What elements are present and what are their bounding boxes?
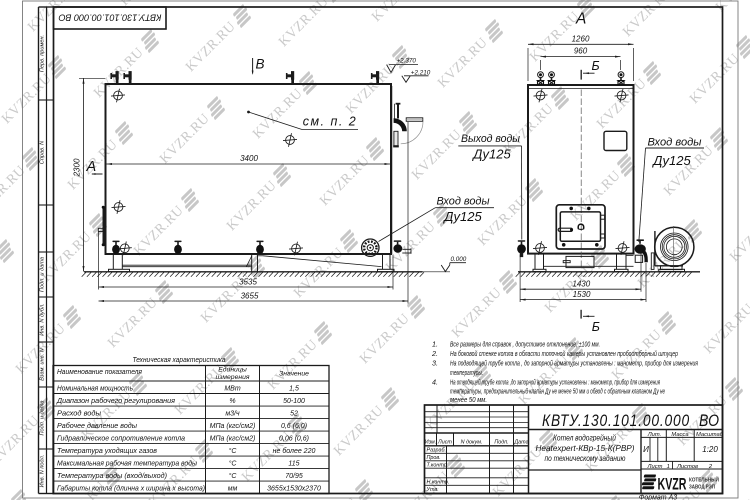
svg-text:м3/ч: м3/ч — [225, 410, 240, 417]
svg-text:115: 115 — [288, 460, 299, 467]
svg-text:3655х1530х2370: 3655х1530х2370 — [267, 485, 321, 492]
svg-text:3.: 3. — [432, 359, 438, 368]
svg-text:2300: 2300 — [73, 158, 82, 177]
svg-text:см. п. 2: см. п. 2 — [303, 115, 358, 129]
svg-text:3655: 3655 — [241, 292, 259, 301]
svg-text:А: А — [575, 11, 586, 28]
svg-text:температуры.: температуры. — [450, 368, 483, 377]
svg-text:Диапазон рабочего регулировани: Диапазон рабочего регулирования — [56, 397, 175, 405]
svg-text:3535: 3535 — [239, 278, 257, 287]
svg-text:Значение: Значение — [279, 371, 309, 378]
svg-text:Б: Б — [592, 59, 600, 73]
svg-text:Масса: Масса — [671, 432, 689, 438]
svg-text:Н.контр.: Н.контр. — [427, 480, 450, 486]
svg-text:Техническая характеристика: Техническая характеристика — [133, 355, 226, 364]
svg-text:Вход воды: Вход воды — [648, 137, 702, 149]
svg-text:70/95: 70/95 — [285, 473, 303, 480]
svg-text:менее 50 мм.: менее 50 мм. — [450, 395, 487, 404]
svg-text:На боковой стенке котла в обла: На боковой стенке котла в области топочн… — [450, 349, 678, 358]
svg-text:Формат А3: Формат А3 — [639, 495, 677, 500]
svg-text:°С: °С — [229, 447, 238, 455]
svg-text:МПа (кгс/см2): МПа (кгс/см2) — [210, 423, 256, 430]
svg-text:Максимальная рабочая температу: Максимальная рабочая температура воды — [57, 459, 198, 467]
svg-text:Подп.: Подп. — [494, 440, 508, 446]
svg-text:Расход воды: Расход воды — [57, 409, 102, 417]
svg-text:+2.370: +2.370 — [397, 58, 417, 65]
svg-text:мм: мм — [228, 485, 238, 492]
svg-text:Температура уходящих газов: Температура уходящих газов — [57, 447, 157, 455]
svg-text:Heatexpert-КВр-15-К(РВР): Heatexpert-КВр-15-К(РВР) — [536, 443, 635, 453]
svg-text:1260: 1260 — [572, 34, 590, 43]
svg-text:Дата: Дата — [513, 440, 528, 446]
svg-text:Разраб.: Разраб. — [427, 448, 447, 454]
svg-text:°С: °С — [229, 459, 238, 467]
svg-text:Все размеры для справок , допу: Все размеры для справок , допустимое отк… — [450, 340, 600, 349]
svg-text:по техническому заданию: по техническому заданию — [545, 454, 626, 463]
svg-text:А: А — [86, 159, 97, 175]
svg-text:На отводящей трубе котла ,до з: На отводящей трубе котла ,до запорной ар… — [450, 378, 660, 387]
svg-text:Ду125: Ду125 — [471, 147, 511, 162]
svg-text:Лист: Лист — [647, 464, 663, 470]
svg-text:Листов: Листов — [676, 464, 698, 470]
svg-text:Инв. N подл.: Инв. N подл. — [40, 455, 46, 488]
svg-text:На подводящей трубе котла ,: На подводящей трубе котла , до запорной … — [450, 359, 698, 368]
svg-text:Пров.: Пров. — [427, 455, 441, 461]
svg-text:Габариты котла (длинна х ширин: Габариты котла (длинна х ширина х высота… — [57, 484, 205, 492]
svg-text:КОТЕЛЬНЫЙ: КОТЕЛЬНЫЙ — [689, 475, 719, 483]
svg-text:50-100: 50-100 — [283, 398, 305, 405]
svg-text:Изм.: Изм. — [425, 440, 437, 446]
svg-text:В: В — [256, 57, 265, 72]
svg-text:Единицы: Единицы — [218, 366, 246, 374]
svg-text:Подп. и дата: Подп. и дата — [40, 257, 46, 292]
svg-text:Масштаб: Масштаб — [696, 432, 724, 438]
svg-text:Инв. N дубл.: Инв. N дубл. — [40, 303, 46, 335]
svg-text:Наименование показателя: Наименование показателя — [57, 369, 142, 376]
svg-text:Вход воды: Вход воды — [437, 196, 490, 208]
svg-text:Рабочее давление воды: Рабочее давление воды — [57, 422, 138, 430]
svg-text:измерения: измерения — [215, 374, 249, 381]
svg-text:+2.210: +2.210 — [411, 69, 431, 76]
svg-text:Справ. N: Справ. N — [40, 140, 46, 164]
svg-text:ЗАВОД РЭП: ЗАВОД РЭП — [689, 485, 715, 491]
svg-text:°С: °С — [229, 472, 238, 480]
svg-text:52: 52 — [290, 410, 298, 417]
svg-text:1:20: 1:20 — [702, 445, 718, 454]
svg-text:Взам. инв. N: Взам. инв. N — [40, 347, 46, 381]
svg-text:МПа (кгс/см2): МПа (кгс/см2) — [210, 435, 256, 442]
svg-text:960: 960 — [574, 47, 588, 56]
svg-text:Ду125: Ду125 — [442, 209, 482, 224]
svg-text:1,5: 1,5 — [289, 385, 299, 392]
svg-text:МВт: МВт — [224, 385, 241, 392]
svg-text:Котел водогрейный: Котел водогрейный — [553, 434, 616, 443]
svg-text:Подп. и дата: Подп. и дата — [40, 400, 46, 435]
svg-text:КВТУ.130.101.00.000 ВО: КВТУ.130.101.00.000 ВО — [58, 12, 162, 23]
svg-text:Гидравлическое сопротивление к: Гидравлическое сопротивление котла — [57, 434, 185, 442]
svg-text:1: 1 — [667, 464, 670, 470]
svg-text:Номинальная мощность: Номинальная мощность — [57, 385, 133, 392]
svg-text:Б: Б — [592, 320, 600, 334]
svg-text:Выход воды: Выход воды — [461, 133, 520, 145]
svg-text:КВТУ.130.101.00.000: КВТУ.130.101.00.000 — [542, 412, 690, 430]
svg-text:0,6 (6,0): 0,6 (6,0) — [281, 423, 307, 430]
svg-text:1.: 1. — [432, 340, 438, 349]
svg-text:%: % — [229, 398, 235, 405]
svg-text:Лист: Лист — [437, 440, 452, 446]
svg-text:0,06 (0,6): 0,06 (0,6) — [279, 435, 309, 442]
svg-text:Ду125: Ду125 — [651, 153, 691, 168]
svg-text:2.: 2. — [431, 349, 438, 358]
svg-text:И: И — [643, 445, 649, 454]
svg-text:Перв. примен.: Перв. примен. — [40, 35, 46, 72]
svg-text:1530: 1530 — [573, 290, 591, 299]
svg-text:N докум.: N докум. — [461, 440, 483, 446]
svg-text:Утв.: Утв. — [426, 487, 439, 493]
svg-text:1430: 1430 — [572, 280, 590, 289]
svg-text:не более 220: не более 220 — [273, 447, 316, 455]
svg-text:Т.контр.: Т.контр. — [427, 463, 449, 469]
svg-text:4.: 4. — [432, 378, 438, 387]
svg-text:KVZR: KVZR — [658, 475, 687, 493]
svg-text:Температура воды (вход/выход): Температура воды (вход/выход) — [57, 472, 167, 480]
svg-text:Лит.: Лит. — [647, 432, 662, 438]
svg-text:3400: 3400 — [240, 154, 258, 163]
svg-text:0.000: 0.000 — [451, 256, 467, 263]
svg-text:ВО: ВО — [699, 412, 719, 430]
